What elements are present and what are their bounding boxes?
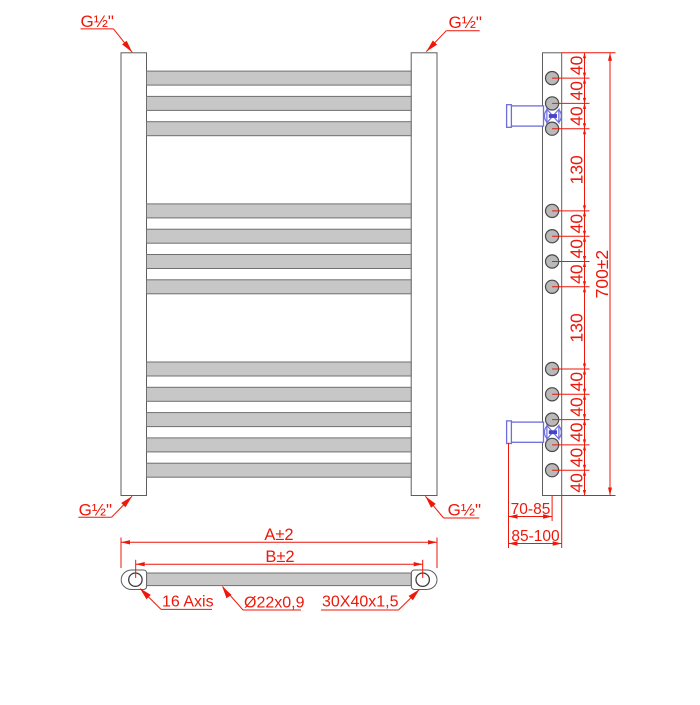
svg-text:G½": G½" bbox=[448, 501, 481, 520]
svg-text:G½": G½" bbox=[449, 13, 482, 32]
svg-text:40: 40 bbox=[566, 264, 586, 284]
svg-text:G½": G½" bbox=[81, 12, 114, 31]
svg-text:Ø22x0,9: Ø22x0,9 bbox=[244, 594, 305, 611]
svg-text:B±2: B±2 bbox=[265, 548, 294, 566]
svg-text:40: 40 bbox=[566, 239, 586, 259]
svg-text:700±2: 700±2 bbox=[592, 250, 612, 299]
svg-text:70-85: 70-85 bbox=[511, 501, 551, 518]
svg-text:30X40x1,5: 30X40x1,5 bbox=[322, 593, 399, 610]
svg-text:40: 40 bbox=[566, 214, 586, 234]
svg-text:40: 40 bbox=[566, 55, 586, 75]
svg-text:16 Axis: 16 Axis bbox=[162, 593, 214, 610]
svg-text:40: 40 bbox=[566, 397, 586, 417]
svg-text:85-100: 85-100 bbox=[511, 528, 560, 545]
svg-text:40: 40 bbox=[566, 81, 586, 101]
svg-text:G½": G½" bbox=[79, 501, 112, 520]
svg-text:40: 40 bbox=[566, 448, 586, 468]
svg-text:40: 40 bbox=[566, 106, 586, 126]
svg-text:40: 40 bbox=[566, 473, 586, 493]
svg-text:A±2: A±2 bbox=[264, 526, 293, 544]
svg-text:130: 130 bbox=[566, 155, 586, 184]
svg-text:40: 40 bbox=[566, 422, 586, 442]
svg-text:130: 130 bbox=[566, 313, 586, 342]
svg-text:40: 40 bbox=[566, 372, 586, 392]
